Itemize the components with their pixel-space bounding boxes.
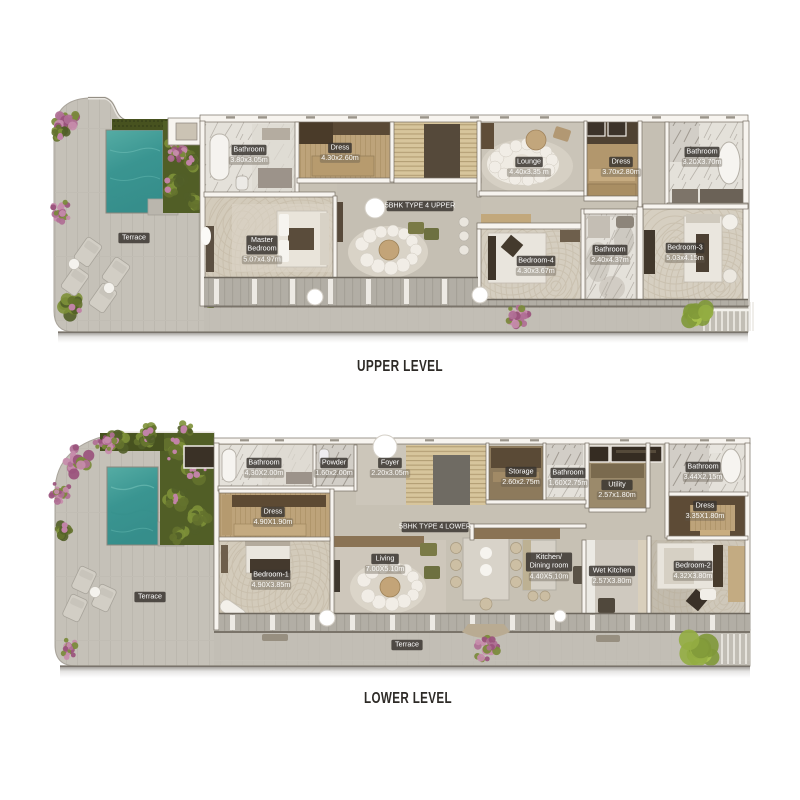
svg-text:3.70x2.80m: 3.70x2.80m — [602, 167, 640, 176]
svg-text:5.07x4.97m: 5.07x4.97m — [243, 255, 281, 264]
svg-text:5.03x4.15m: 5.03x4.15m — [666, 253, 704, 262]
svg-text:2.60x2.75m: 2.60x2.75m — [502, 477, 540, 486]
svg-text:Bathroom: Bathroom — [233, 144, 264, 153]
svg-text:Bathroom: Bathroom — [687, 461, 718, 470]
svg-text:Dining room: Dining room — [530, 561, 569, 570]
svg-text:Bedroom-4: Bedroom-4 — [518, 255, 554, 264]
svg-text:2.57x1.80m: 2.57x1.80m — [598, 490, 636, 499]
svg-text:3.20X3.70m: 3.20X3.70m — [683, 157, 722, 166]
svg-text:4.90X3.85m: 4.90X3.85m — [252, 580, 291, 589]
svg-text:4.90X1.90m: 4.90X1.90m — [254, 517, 293, 526]
svg-text:4.30x3.67m: 4.30x3.67m — [517, 266, 555, 275]
svg-text:4.40X5.10m: 4.40X5.10m — [530, 572, 569, 581]
svg-text:Lounge: Lounge — [517, 156, 541, 165]
svg-text:Dress: Dress — [331, 142, 350, 151]
svg-text:Wet Kitchen: Wet Kitchen — [593, 565, 632, 574]
svg-text:Bedroom-1: Bedroom-1 — [253, 569, 289, 578]
svg-text:5BHK TYPE 4 LOWER: 5BHK TYPE 4 LOWER — [399, 523, 471, 530]
svg-text:7.00X5.10m: 7.00X5.10m — [366, 564, 405, 573]
svg-text:Foyer: Foyer — [381, 457, 400, 466]
svg-text:Bedroom-2: Bedroom-2 — [675, 560, 711, 569]
svg-text:1.60X2.75m: 1.60X2.75m — [549, 478, 588, 487]
svg-text:5BHK TYPE 4 UPPER: 5BHK TYPE 4 UPPER — [385, 202, 455, 209]
svg-text:3.44X2.15m: 3.44X2.15m — [684, 472, 723, 481]
svg-text:3.80x3.05m: 3.80x3.05m — [230, 155, 268, 164]
svg-text:Bathroom: Bathroom — [248, 457, 279, 466]
svg-text:Terrace: Terrace — [122, 232, 146, 241]
svg-text:2.57X3.80m: 2.57X3.80m — [593, 576, 632, 585]
svg-text:4.30X2.00m: 4.30X2.00m — [245, 468, 284, 477]
svg-text:4.32X3.80m: 4.32X3.80m — [674, 571, 713, 580]
svg-text:Dress: Dress — [696, 500, 715, 509]
svg-text:Storage: Storage — [508, 466, 533, 475]
svg-text:4.30x2.60m: 4.30x2.60m — [321, 153, 359, 162]
svg-text:Living: Living — [376, 553, 395, 562]
svg-text:LOWER LEVEL: LOWER LEVEL — [364, 690, 452, 707]
svg-text:UPPER LEVEL: UPPER LEVEL — [357, 358, 443, 375]
svg-text:Terrace: Terrace — [395, 639, 419, 648]
svg-text:Bathroom: Bathroom — [686, 146, 717, 155]
svg-text:Bathroom: Bathroom — [552, 467, 583, 476]
svg-text:Powder: Powder — [322, 457, 347, 466]
svg-text:Utility: Utility — [608, 479, 626, 488]
svg-text:4.40x3.35 m: 4.40x3.35 m — [509, 167, 549, 176]
svg-text:Dress: Dress — [612, 156, 631, 165]
svg-text:2.40x4.37m: 2.40x4.37m — [591, 255, 629, 264]
svg-text:Bedroom: Bedroom — [247, 244, 276, 253]
svg-text:Bedroom-3: Bedroom-3 — [667, 242, 703, 251]
svg-text:Terrace: Terrace — [138, 591, 162, 600]
svg-text:1.60x2.00m: 1.60x2.00m — [315, 468, 353, 477]
svg-text:Dress: Dress — [264, 506, 283, 515]
svg-text:2.20x3.05m: 2.20x3.05m — [371, 468, 409, 477]
svg-text:3.35X1.80m: 3.35X1.80m — [686, 511, 725, 520]
svg-text:Bathroom: Bathroom — [594, 244, 625, 253]
